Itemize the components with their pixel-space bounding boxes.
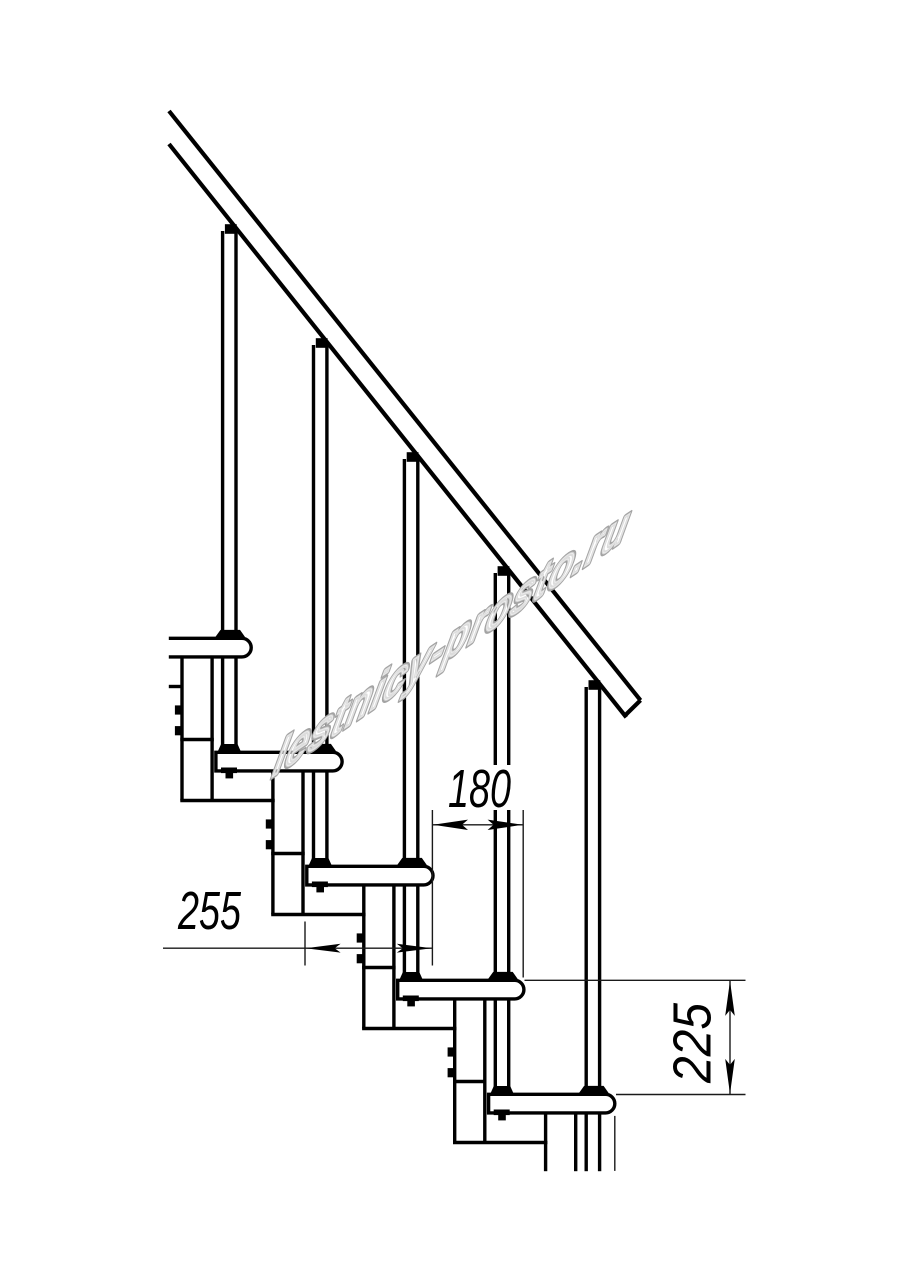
svg-text:225: 225 — [664, 1003, 723, 1084]
svg-text:255: 255 — [177, 882, 241, 941]
svg-text:180: 180 — [448, 760, 511, 819]
